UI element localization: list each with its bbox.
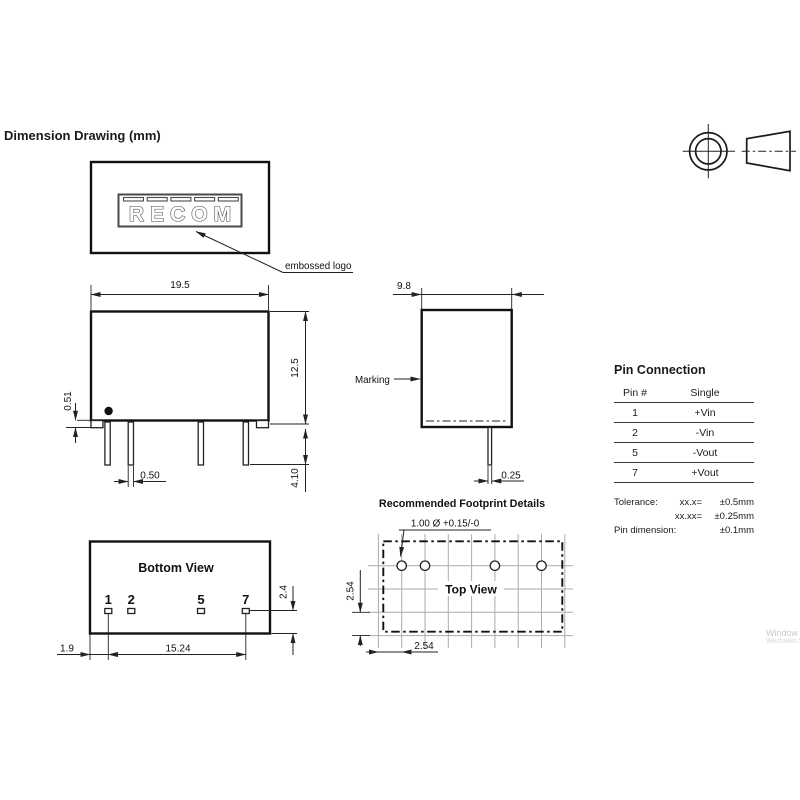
pin-number: 5	[614, 447, 656, 459]
footprint-title: Recommended Footprint Details	[379, 498, 545, 510]
pin-connection-section: Pin Connection Pin # Single 1 +Vin 2 -Vi…	[614, 363, 754, 538]
tolerance-row-1: Tolerance: xx.x= ±0.5mm	[614, 496, 754, 510]
marking-label: Marking	[355, 375, 390, 386]
watermark-line-1: Window	[766, 628, 800, 638]
front-right-foot	[257, 421, 269, 428]
projection-symbol-circle	[683, 124, 735, 178]
tolerance-key-1: xx.x=	[680, 496, 702, 510]
pin1-marker-dot	[104, 407, 112, 415]
watermark-line-2: Wechseln S	[766, 638, 800, 645]
pin-dimension-label: Pin dimension:	[614, 524, 676, 538]
recom-logo: RECOM	[119, 195, 242, 227]
front-height-dim: 12.5	[290, 358, 301, 378]
tolerance-label: Tolerance:	[614, 496, 658, 510]
bottom-view: Bottom View 1 2 5 7 2.4 1.9	[57, 542, 297, 661]
pin-table-header-pin: Pin #	[614, 387, 656, 399]
tolerance-notes: Tolerance: xx.x= ±0.5mm xx.xx= ±0.25mm P…	[614, 496, 754, 538]
dimension-drawing-page: Dimension Drawing (mm) RECOM embosse	[0, 0, 800, 800]
front-view: 19.5 0.51 0.50	[63, 280, 309, 492]
table-row: 1 +Vin	[614, 403, 754, 423]
logo-panel-view: RECOM embossed logo	[91, 162, 353, 273]
hole-diameter-label: 1.00 Ø +0.15/-0	[411, 519, 480, 530]
bottom-pad-offset-dim: 2.4	[279, 585, 290, 599]
front-case-outline	[91, 312, 269, 421]
pin-table-header-row: Pin # Single	[614, 383, 754, 403]
pin-connection-title: Pin Connection	[614, 363, 754, 377]
side-view: 9.8 Marking 0.25	[355, 281, 544, 484]
bottom-edge-offset-dim: 1.9	[60, 644, 74, 655]
embossed-logo-label: embossed logo	[285, 261, 352, 272]
tolerance-key-2: xx.xx=	[675, 510, 702, 524]
tolerance-row-2: xx.xx= ±0.25mm	[614, 510, 754, 524]
side-depth-dim: 9.8	[397, 281, 411, 292]
footprint-horizontal-pitch-dim: 2.54	[414, 641, 434, 652]
bottom-pin-7-label: 7	[242, 592, 249, 607]
tolerance-value-1: ±0.5mm	[702, 496, 754, 510]
pin-connection-table: Pin # Single 1 +Vin 2 -Vin 5 -Vout 7 +Vo…	[614, 383, 754, 483]
pin-dimension-value: ±0.1mm	[702, 524, 754, 538]
pin-table-header-single: Single	[656, 387, 754, 399]
bottom-pin-1-label: 1	[105, 592, 112, 607]
table-row: 7 +Vout	[614, 463, 754, 483]
pin-number: 2	[614, 427, 656, 439]
pin-number: 1	[614, 407, 656, 419]
bottom-pin-span-dim: 15.24	[165, 644, 190, 655]
side-pin	[488, 428, 492, 466]
front-width-dim: 19.5	[170, 280, 190, 291]
pin-function: +Vin	[656, 407, 754, 419]
footprint-vertical-pitch-dim: 2.54	[346, 581, 357, 601]
tolerance-value-2: ±0.25mm	[702, 510, 754, 524]
tolerance-row-3: Pin dimension: ±0.1mm	[614, 524, 754, 538]
side-pin-thickness-dim: 0.25	[501, 471, 521, 482]
pin-number: 7	[614, 467, 656, 479]
bottom-view-title: Bottom View	[138, 561, 214, 575]
table-row: 2 -Vin	[614, 423, 754, 443]
pin-function: +Vout	[656, 467, 754, 479]
bottom-pin-2-label: 2	[128, 592, 135, 607]
side-case-outline	[422, 310, 512, 427]
front-left-foot	[91, 421, 103, 428]
footprint-view: Recommended Footprint Details	[346, 498, 574, 652]
front-standoff-dim: 0.51	[63, 391, 74, 411]
top-view-label: Top View	[445, 583, 497, 597]
front-pins	[105, 422, 249, 465]
bottom-view-outline	[90, 542, 270, 634]
table-row: 5 -Vout	[614, 443, 754, 463]
pin-function: -Vin	[656, 427, 754, 439]
pin-function: -Vout	[656, 447, 754, 459]
projection-symbol-cone	[742, 131, 796, 170]
front-pin-width-dim: 0.50	[140, 471, 160, 482]
bottom-pin-5-label: 5	[197, 592, 204, 607]
watermark: Window Wechseln S	[766, 628, 800, 645]
front-pin-length-dim: 4.10	[290, 468, 301, 488]
hole-diameter-callout: 1.00 Ø +0.15/-0	[399, 519, 491, 557]
recom-logo-text: RECOM	[129, 203, 237, 226]
